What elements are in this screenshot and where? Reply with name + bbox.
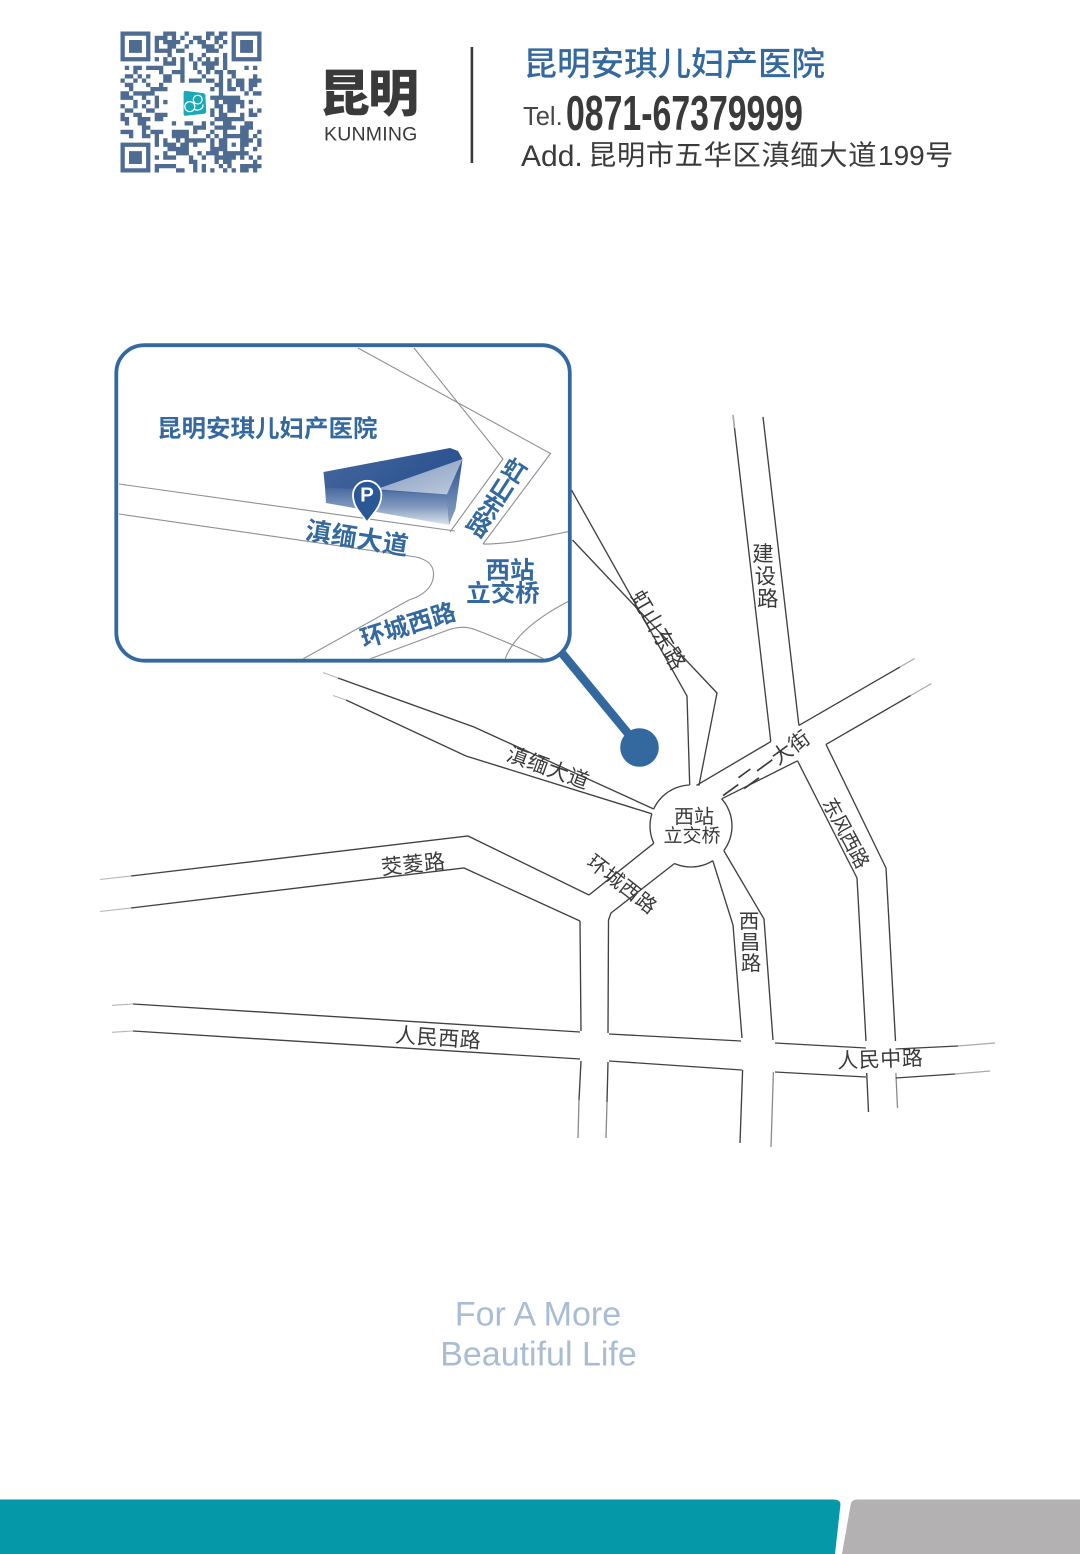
svg-text:Beautiful Life: Beautiful Life (440, 1336, 637, 1374)
svg-text:199: 199 (878, 140, 925, 171)
svg-text:For A More: For A More (455, 1296, 621, 1334)
svg-text:KUNMING: KUNMING (324, 124, 417, 146)
svg-text:Tel.: Tel. (523, 103, 563, 131)
svg-text:Add.: Add. (521, 140, 583, 173)
svg-text:P: P (360, 484, 374, 507)
svg-text:0871-67379999: 0871-67379999 (566, 87, 803, 141)
